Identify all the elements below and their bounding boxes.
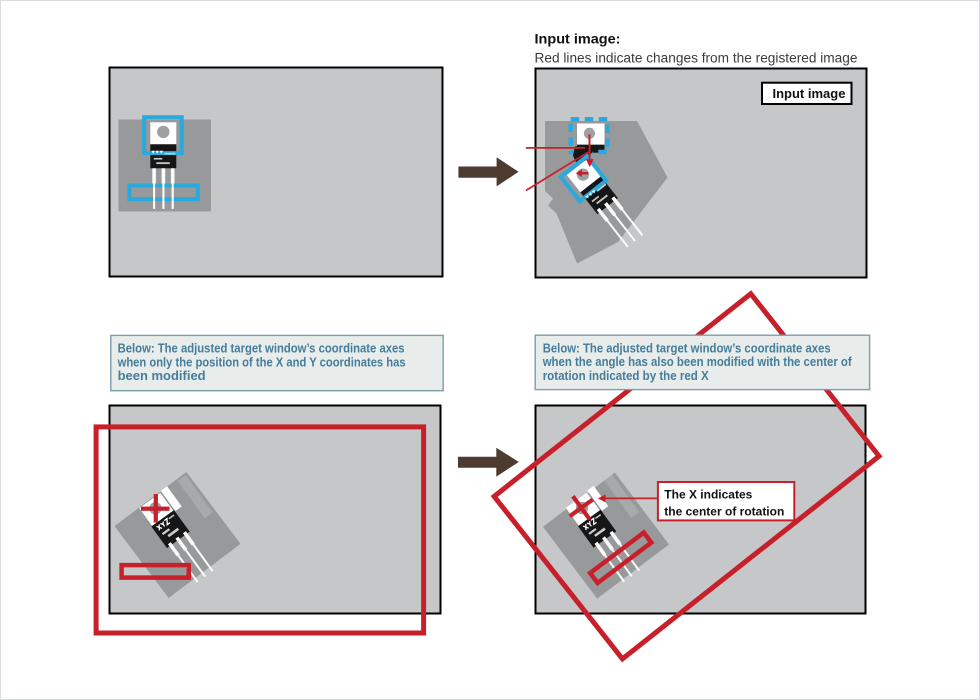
- svg-text:Input image:: Input image:: [535, 31, 621, 47]
- svg-text:rotation indicated by the red: rotation indicated by the red X: [543, 369, 710, 383]
- svg-text:Below: The adjusted target win: Below: The adjusted target window’s coor…: [118, 342, 405, 356]
- svg-text:Below: The adjusted target win: Below: The adjusted target window’s coor…: [543, 341, 831, 355]
- svg-text:The X indicates: The X indicates: [664, 487, 752, 501]
- svg-text:Input image: Input image: [773, 86, 846, 101]
- svg-text:when only the position of the: when only the position of the X and Y co…: [117, 355, 406, 369]
- svg-text:Red lines indicate changes fro: Red lines indicate changes from the regi…: [535, 51, 858, 66]
- svg-text:when the angle has also been m: when the angle has also been modified wi…: [542, 355, 853, 369]
- svg-text:the center of rotation: the center of rotation: [664, 504, 784, 518]
- svg-text:been modified: been modified: [118, 369, 206, 383]
